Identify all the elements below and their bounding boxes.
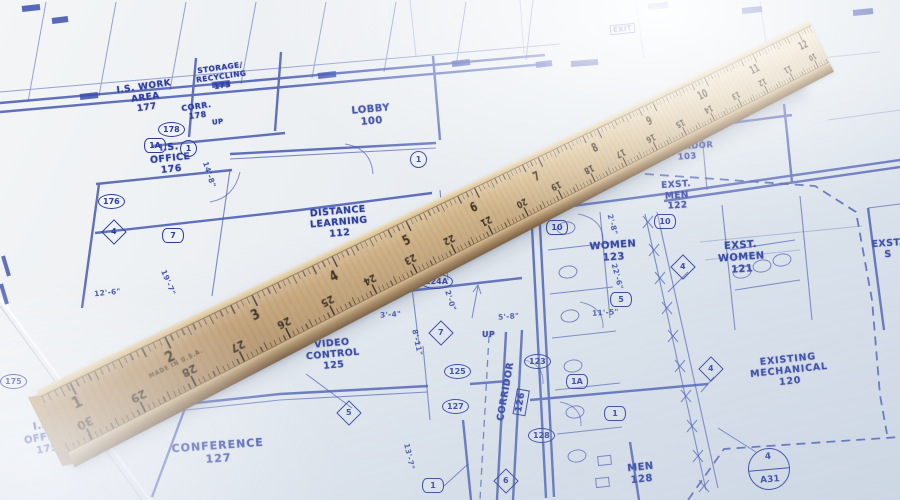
- room-label-storage-recycling: STORAGE/ RECYCLING 173: [194, 61, 248, 94]
- detail-divider: [749, 467, 789, 471]
- keynote-diamond-6: 6: [493, 468, 518, 493]
- door-tag-125: 125: [444, 364, 471, 379]
- dim-19-7: 19'-7": [159, 268, 177, 296]
- keynote-diamond-5: 5: [336, 400, 361, 425]
- room-label-men: MEN 128: [627, 461, 656, 487]
- dim-22-6: 22'-6": [610, 262, 626, 290]
- dim-2-8: 2'-8": [606, 213, 620, 236]
- blueprint-photo-scene: I.S. WORK AREA 177 STORAGE/ RECYCLING 17…: [0, 0, 900, 500]
- keynote-hex-10-exst: 10: [654, 214, 676, 229]
- door-tag-127: 127: [442, 399, 469, 414]
- keynote-hex-1a-office: 1A: [144, 138, 166, 153]
- keynote-diamond-4b-text: 4: [680, 263, 686, 271]
- keynote-diamond-4c: 4: [698, 356, 723, 381]
- door-tag-178: 178: [158, 122, 185, 137]
- room-label-exst-women: EXST. WOMEN 121: [717, 238, 766, 277]
- keynote-diamond-7: 7: [428, 320, 453, 345]
- room-label-exst-s: EXST. S: [871, 237, 900, 262]
- keynote-circle-1-lobby: 1: [410, 151, 427, 168]
- label-up-corridor: UP: [482, 330, 495, 339]
- label-up-corr: UP: [212, 117, 224, 126]
- room-label-is-work-area: I.S. WORK AREA 177: [116, 78, 175, 117]
- label-exit: EXIT: [610, 23, 636, 36]
- room-label-corridor-126-number: 126: [513, 388, 530, 416]
- dim-13-7: 13'-7": [402, 442, 416, 470]
- room-label-existing-mechanical: EXISTING MECHANICAL 120: [748, 350, 829, 392]
- room-label-corr: CORR. 178: [181, 100, 214, 123]
- room-label-conference: CONFERENCE 127: [171, 437, 265, 469]
- door-tag-176: 176: [98, 194, 125, 209]
- keynote-diamond-4a-text: 4: [111, 228, 117, 236]
- keynote-diamond-6-text: 6: [503, 477, 509, 485]
- dim-12-6: 12'-6": [94, 287, 122, 299]
- keynote-diamond-4c-text: 4: [708, 365, 714, 373]
- dim-11-5: 11'-5": [592, 307, 619, 318]
- door-tag-128: 128: [528, 428, 555, 443]
- dim-14-8: 14'-8": [201, 160, 218, 188]
- dim-2-0: 2'-0": [443, 289, 458, 312]
- room-label-women: WOMEN 123: [589, 238, 637, 265]
- room-label-exst-men: EXST. MEN 122: [661, 179, 693, 213]
- keynote-diamond-5-text: 5: [346, 409, 352, 417]
- keynote-diamond-7-text: 7: [438, 329, 444, 337]
- door-tag-123: 123: [524, 354, 551, 369]
- keynote-diamond-4a: 4: [101, 219, 126, 244]
- keynote-hex-5-women: 5: [610, 292, 632, 307]
- keynote-hex-7a: 7: [162, 228, 184, 243]
- detail-number: 4: [748, 450, 789, 463]
- dim-5-8: 5'-8": [498, 311, 520, 321]
- door-tag-175: 175: [0, 374, 27, 389]
- keynote-hex-1-conference: 1: [422, 478, 444, 493]
- keynote-diamond-4b: 4: [670, 254, 695, 279]
- section-detail-marker-a31: 4 A31: [746, 446, 792, 492]
- keynote-circle-1-office: 1: [180, 140, 197, 157]
- dim-8-11: 8'-11": [410, 328, 424, 356]
- keynote-hex-1-men: 1: [604, 406, 626, 421]
- keynote-hex-1a-men: 1A: [566, 374, 588, 389]
- room-label-lobby: LOBBY 100: [351, 102, 391, 129]
- detail-sheet: A31: [750, 473, 791, 486]
